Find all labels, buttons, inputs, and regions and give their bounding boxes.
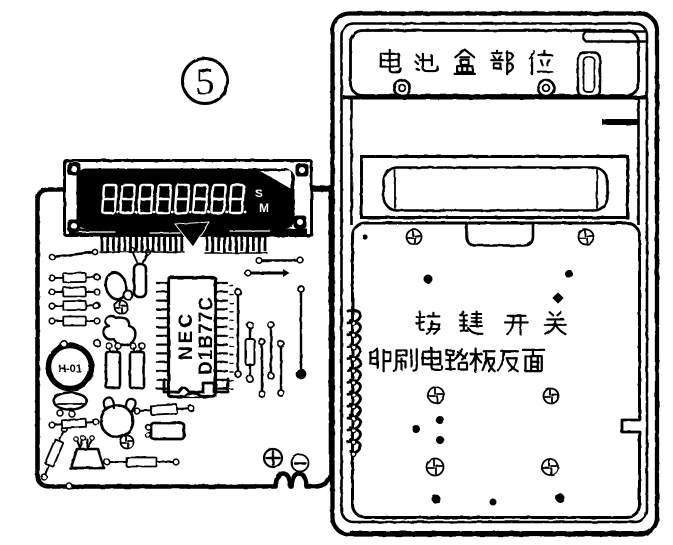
- svg-text:M: M: [259, 201, 269, 215]
- svg-text:H-01: H-01: [58, 363, 82, 375]
- svg-text:S: S: [255, 188, 262, 200]
- svg-text:NEC: NEC: [176, 311, 197, 360]
- svg-text:D1B77C: D1B77C: [196, 296, 217, 375]
- svg-text:5: 5: [196, 61, 215, 103]
